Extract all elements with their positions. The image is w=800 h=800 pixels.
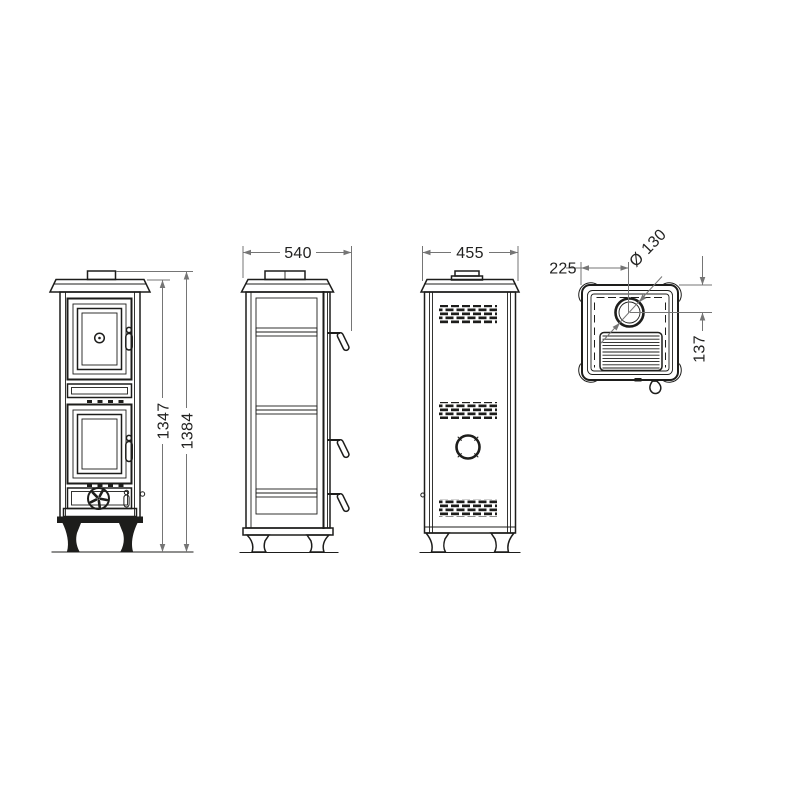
- side-view: 540: [240, 245, 352, 553]
- panel-bands: [256, 328, 317, 497]
- door-handle: [328, 332, 350, 352]
- rear-right-leg: [491, 533, 514, 552]
- dimension-label-540: 540: [284, 245, 312, 262]
- firebox-door: [68, 405, 132, 484]
- front-left-leg: [63, 523, 82, 552]
- vent-grille-top: [439, 305, 497, 324]
- front-right-leg: [119, 523, 138, 552]
- oven-door-knob: [95, 333, 105, 343]
- dimension-label-137: 137: [692, 335, 709, 363]
- ash-drawer-handle: [124, 490, 129, 507]
- stove-technical-drawing: 1347 1384 540: [0, 0, 800, 800]
- rear-left-leg: [426, 533, 449, 552]
- door-handles-side: [328, 332, 350, 513]
- top-plate: [50, 280, 150, 293]
- drawing-page: 1347 1384 540: [0, 0, 800, 800]
- base-trim: [57, 517, 143, 524]
- dimension-label-1347: 1347: [156, 403, 173, 440]
- dimension-depth-540: 540: [243, 245, 352, 331]
- side-front-leg: [307, 535, 329, 552]
- top-view: 225 Ø 130 137: [549, 226, 712, 393]
- trim-band: [68, 384, 132, 398]
- flue-collar: [88, 271, 116, 280]
- rear-view: 455: [420, 245, 520, 553]
- door-handle: [328, 493, 350, 513]
- hinge-slots-upper: [87, 400, 124, 403]
- flue-collar-side: [265, 271, 305, 280]
- top-plate-side: [242, 280, 334, 293]
- door-handle: [328, 439, 350, 459]
- side-latch-knob: [140, 492, 144, 496]
- dimension-label-diameter-130: Ø 130: [626, 226, 670, 270]
- top-plate-rear: [421, 280, 519, 293]
- dimension-label-1384: 1384: [180, 413, 197, 450]
- base-band-side: [243, 528, 333, 535]
- lid-lifter-handle: [650, 381, 661, 394]
- dimension-label-225: 225: [549, 261, 577, 278]
- flue-outlet: [457, 436, 480, 459]
- lid-tab: [635, 378, 642, 382]
- dimension-label-455: 455: [456, 245, 484, 262]
- dimension-height-1347: 1347: [147, 280, 173, 552]
- vent-grille-middle: [439, 402, 497, 419]
- side-back-leg: [247, 535, 269, 552]
- flue-collar-rear: [452, 271, 483, 280]
- vent-grille-bottom: [439, 499, 497, 517]
- hotplate: [600, 333, 662, 371]
- front-view: 1347 1384: [50, 271, 197, 552]
